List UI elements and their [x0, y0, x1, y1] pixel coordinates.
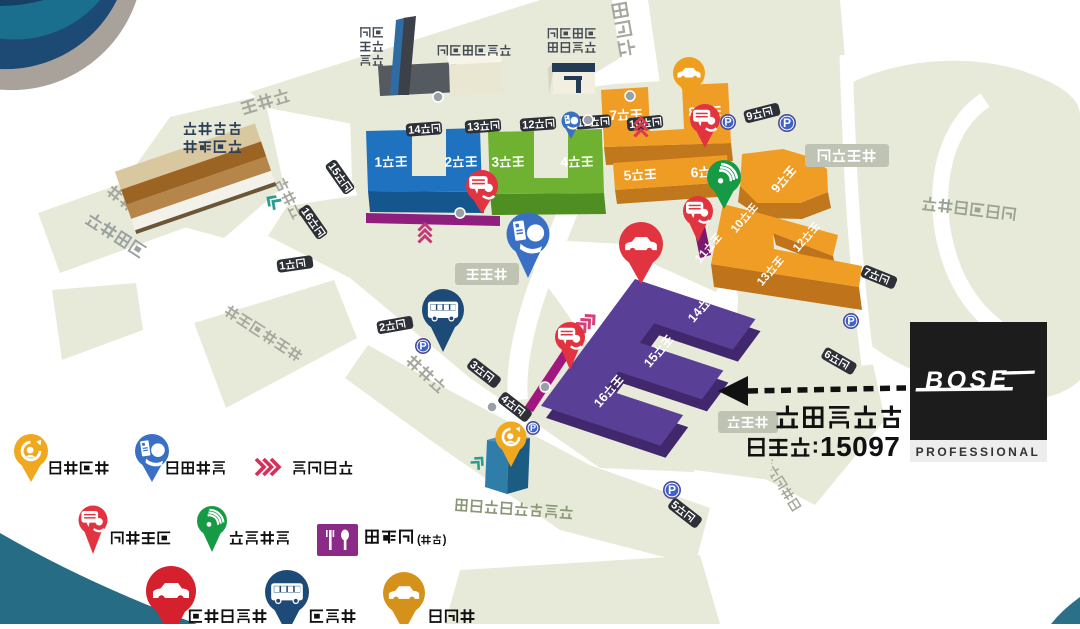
svg-text:4: 4 — [560, 155, 569, 170]
svg-text:P: P — [668, 483, 676, 497]
svg-text:P: P — [530, 423, 536, 433]
svg-text:2: 2 — [528, 119, 535, 131]
svg-text:2: 2 — [444, 155, 453, 170]
svg-text:3: 3 — [473, 121, 480, 133]
svg-text:(: ( — [417, 534, 421, 547]
svg-text:P: P — [419, 340, 426, 352]
svg-text:PROFESSIONAL: PROFESSIONAL — [916, 445, 1041, 459]
svg-text:3: 3 — [491, 155, 500, 170]
svg-text:P: P — [783, 116, 791, 130]
svg-text:1: 1 — [374, 155, 383, 170]
svg-text:P: P — [724, 116, 731, 128]
svg-text:6: 6 — [690, 165, 699, 181]
svg-text:P: P — [847, 315, 854, 327]
svg-text:15097: 15097 — [820, 431, 900, 462]
svg-text:): ) — [443, 534, 447, 547]
svg-text:5: 5 — [623, 168, 632, 184]
